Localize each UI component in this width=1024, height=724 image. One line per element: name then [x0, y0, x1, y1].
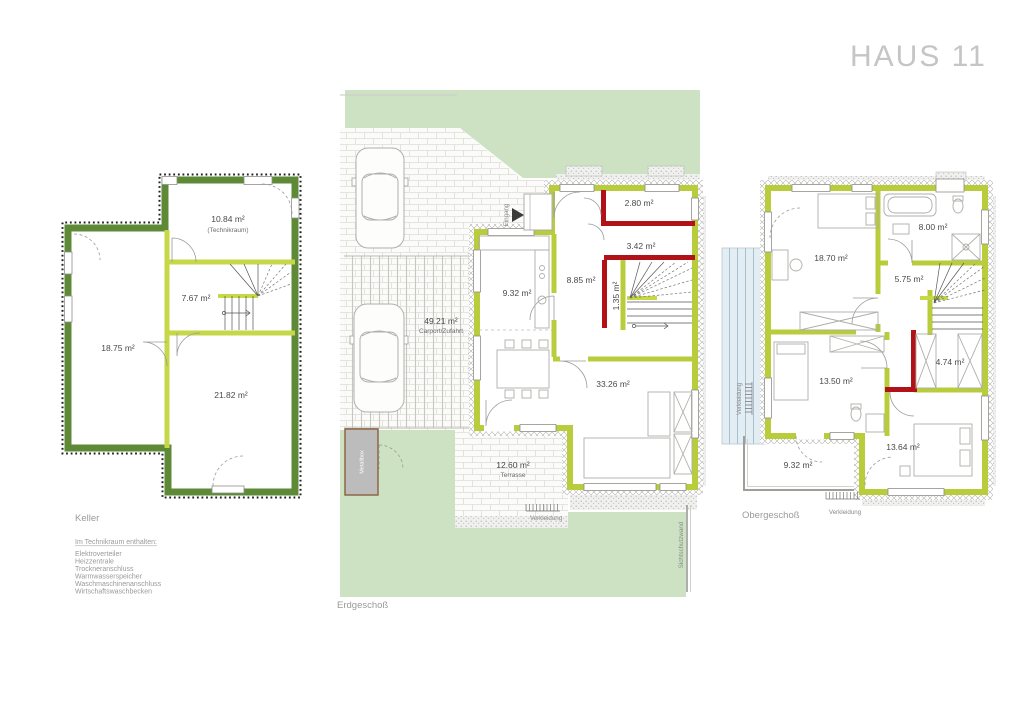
verkleidung-label-og-bottom: Verkleidung: [829, 509, 862, 516]
erdgeschoss-plan: Metallbox: [340, 90, 706, 597]
room-name-technikraum: (Technikraum): [207, 227, 248, 234]
room-label-og-flur: 5.75 m²: [895, 274, 924, 284]
sheet-title: HAUS 11: [850, 40, 987, 73]
room-label-kueche: 9.32 m²: [503, 288, 532, 298]
verkleidung-label-og-left: Verkleidung: [736, 382, 743, 415]
legend-heading: Im Technikraum enthalten:: [75, 539, 157, 546]
keller-plan: 10.84 m² (Technikraum) 7.67 m² 18.75 m² …: [63, 175, 301, 498]
room-label-terrasse: 12.60 m²: [496, 460, 530, 470]
room-label-kellerraum: 21.82 m²: [214, 390, 248, 400]
floor-label-keller: Keller: [75, 513, 99, 524]
room-label-abstellraum: 3.42 m²: [627, 241, 656, 251]
room-label-nische: 1.35 m²: [611, 281, 621, 310]
room-label-dachterrasse: 9.32 m²: [784, 460, 813, 470]
obergeschoss-plan: Verkleidung: [722, 172, 996, 516]
legend-item: Waschmaschinenanschluss: [75, 581, 162, 588]
legend-item: Elektroverteiler: [75, 551, 122, 558]
room-name-terrasse: Terrasse: [501, 472, 526, 479]
floor-label-erdgeschoss: Erdgeschoß: [337, 600, 388, 611]
room-label-zimmer-mitte: 13.50 m²: [819, 376, 853, 386]
car-icon: [350, 304, 408, 412]
room-label-hobbyraum: 18.75 m²: [101, 343, 135, 353]
floor-label-obergeschoss: Obergeschoß: [742, 510, 800, 521]
room-label-carport: 49.21 m²: [424, 316, 458, 326]
technikraum-legend: Im Technikraum enthalten: Elektroverteil…: [75, 539, 162, 596]
legend-item: Wirtschaftswaschbecken: [75, 589, 152, 596]
room-name-carport: Carport/Zufahrt: [419, 328, 463, 335]
eingang-label: Eingang: [503, 203, 510, 226]
floorplan-drawing: HAUS 11: [0, 0, 1024, 724]
room-label-diele: 8.85 m²: [567, 275, 596, 285]
room-label-zimmer-gross: 18.70 m²: [814, 253, 848, 263]
sichtschutzwand-label: Sichtschutzwand: [678, 521, 685, 568]
legend-item: Trockneranschluss: [75, 566, 134, 573]
keller-exterior-walls: [68, 180, 295, 492]
room-label-zimmer-unten: 13.64 m²: [886, 442, 920, 452]
legend-item: Warmwasserspeicher: [75, 574, 143, 581]
room-label-wohnen: 33.26 m²: [596, 379, 630, 389]
room-label-ankleide: 4.74 m²: [936, 357, 965, 367]
metallbox-label: Metallbox: [360, 450, 366, 474]
room-label-bad: 8.00 m²: [919, 222, 948, 232]
floorplan-sheet: HAUS 11: [0, 0, 1024, 724]
verkleidung-label-eg: Verkleidung: [530, 515, 563, 522]
room-label-keller-flur: 7.67 m²: [182, 293, 211, 303]
room-label-technikraum: 10.84 m²: [211, 214, 245, 224]
car-icon: [352, 148, 408, 248]
glass-canopy: [722, 248, 765, 444]
legend-item: Heizzentrale: [75, 559, 114, 566]
room-label-wc: 2.80 m²: [625, 198, 654, 208]
